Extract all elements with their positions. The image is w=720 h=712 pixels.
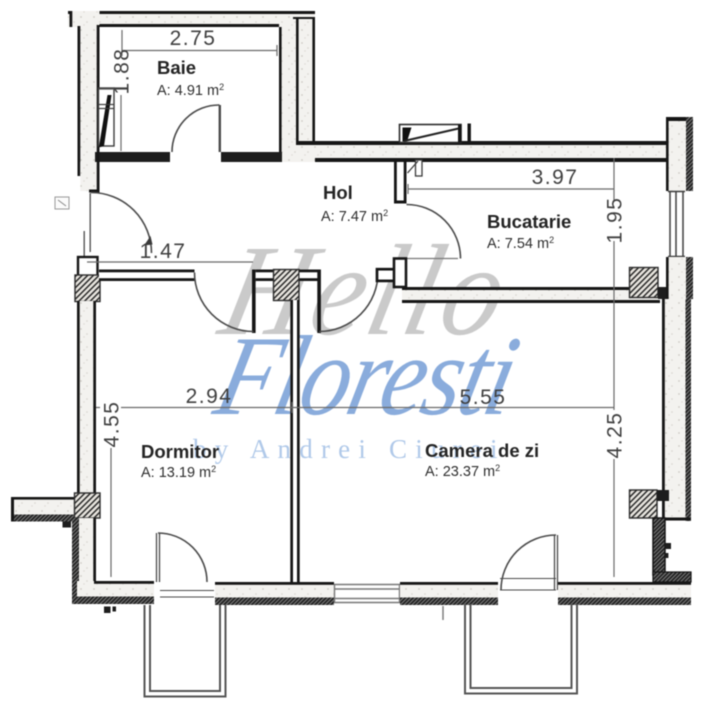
svg-text:1.47: 1.47 bbox=[140, 240, 187, 263]
svg-text:A: 7.54 m2: A: 7.54 m2 bbox=[487, 235, 554, 252]
svg-text:3.97: 3.97 bbox=[532, 166, 579, 189]
svg-text:5.55: 5.55 bbox=[460, 386, 507, 409]
svg-text:A: 4.91 m2: A: 4.91 m2 bbox=[157, 82, 224, 99]
svg-text:4.25: 4.25 bbox=[604, 412, 627, 459]
svg-text:2.94: 2.94 bbox=[186, 385, 233, 408]
svg-text:A: 13.19 m2: A: 13.19 m2 bbox=[141, 464, 216, 481]
svg-text:Baie: Baie bbox=[157, 57, 196, 78]
svg-text:1.88: 1.88 bbox=[111, 48, 134, 95]
svg-text:Hol: Hol bbox=[323, 182, 353, 203]
svg-text:2.75: 2.75 bbox=[170, 27, 217, 50]
svg-text:A: 23.37 m2: A: 23.37 m2 bbox=[425, 463, 500, 480]
svg-text:4.55: 4.55 bbox=[101, 401, 124, 448]
svg-text:Dormitor: Dormitor bbox=[141, 441, 219, 462]
svg-text:A: 7.47 m2: A: 7.47 m2 bbox=[321, 208, 388, 225]
svg-text:Camera de zi: Camera de zi bbox=[425, 440, 539, 461]
svg-text:Bucatarie: Bucatarie bbox=[487, 211, 571, 232]
svg-text:1.95: 1.95 bbox=[604, 197, 627, 244]
